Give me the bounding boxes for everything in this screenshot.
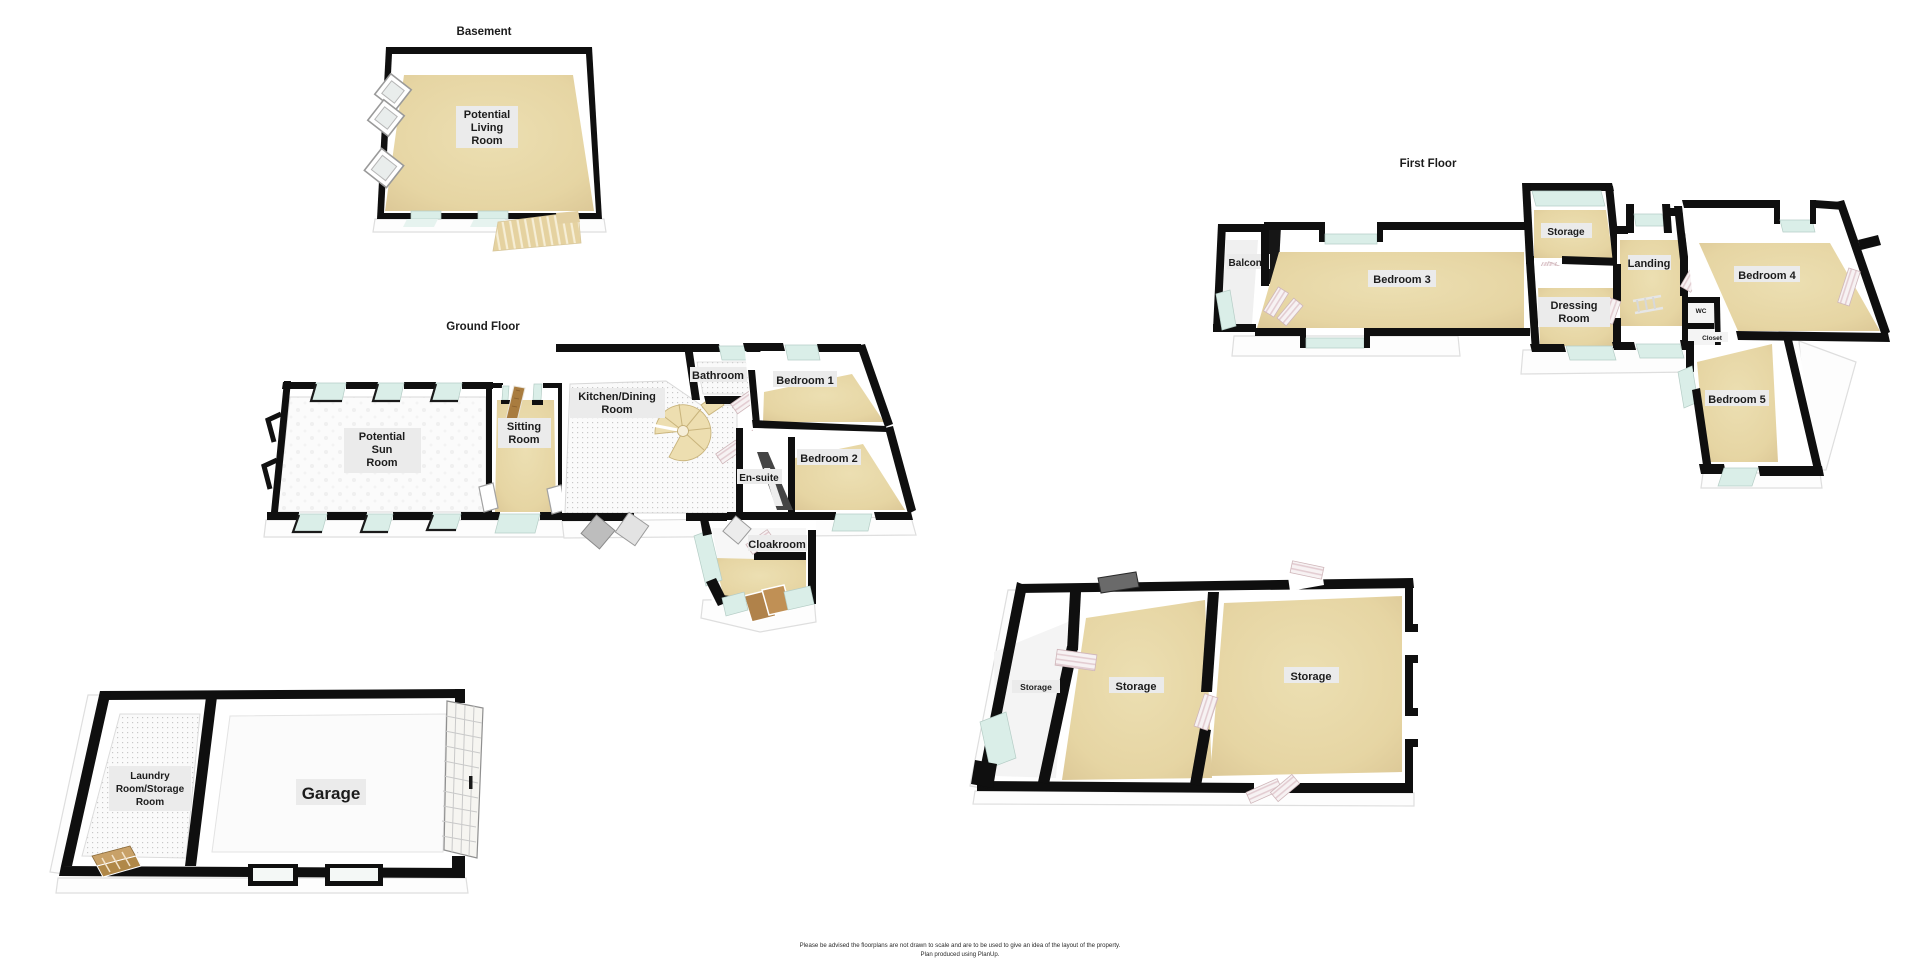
svg-text:Ground Floor: Ground Floor xyxy=(446,321,520,333)
svg-text:En-suite: En-suite xyxy=(739,473,779,484)
svg-text:Room: Room xyxy=(366,457,397,469)
svg-text:Bedroom 5: Bedroom 5 xyxy=(1708,394,1765,406)
svg-text:Room: Room xyxy=(508,434,539,446)
svg-text:Closet: Closet xyxy=(1702,335,1723,342)
svg-text:Sitting: Sitting xyxy=(507,421,541,433)
svg-text:Storage: Storage xyxy=(1116,681,1157,693)
svg-text:Plan produced using PlanUp.: Plan produced using PlanUp. xyxy=(921,951,1000,958)
svg-text:Room: Room xyxy=(136,797,164,808)
svg-text:Bedroom 4: Bedroom 4 xyxy=(1738,270,1796,282)
svg-text:Bedroom 1: Bedroom 1 xyxy=(776,375,833,387)
svg-text:Room/Storage: Room/Storage xyxy=(116,784,185,795)
svg-text:Living: Living xyxy=(471,122,503,134)
svg-text:Room: Room xyxy=(601,404,632,416)
svg-text:Storage: Storage xyxy=(1291,671,1332,683)
svg-text:Please be advised the floorpla: Please be advised the floorplans are not… xyxy=(800,942,1121,949)
svg-text:Storage: Storage xyxy=(1020,682,1052,692)
svg-text:Landing: Landing xyxy=(1628,258,1671,270)
svg-text:Garage: Garage xyxy=(302,784,361,803)
svg-text:Cloakroom: Cloakroom xyxy=(748,539,806,551)
svg-text:Room: Room xyxy=(1558,313,1589,325)
svg-text:Bedroom 2: Bedroom 2 xyxy=(800,453,857,465)
svg-text:Sun: Sun xyxy=(372,444,393,456)
svg-text:Laundry: Laundry xyxy=(130,771,170,782)
svg-text:Room: Room xyxy=(471,135,502,147)
svg-text:First Floor: First Floor xyxy=(1400,158,1457,170)
svg-text:WC: WC xyxy=(1696,308,1707,315)
svg-text:Dressing: Dressing xyxy=(1550,300,1597,312)
svg-text:Storage: Storage xyxy=(1547,227,1585,238)
svg-text:Bedroom 3: Bedroom 3 xyxy=(1373,274,1430,286)
svg-text:Bathroom: Bathroom xyxy=(692,370,744,382)
svg-text:Potential: Potential xyxy=(359,431,405,443)
svg-text:Kitchen/Dining: Kitchen/Dining xyxy=(578,391,656,403)
svg-text:Basement: Basement xyxy=(457,26,512,38)
svg-text:Potential: Potential xyxy=(464,109,510,121)
